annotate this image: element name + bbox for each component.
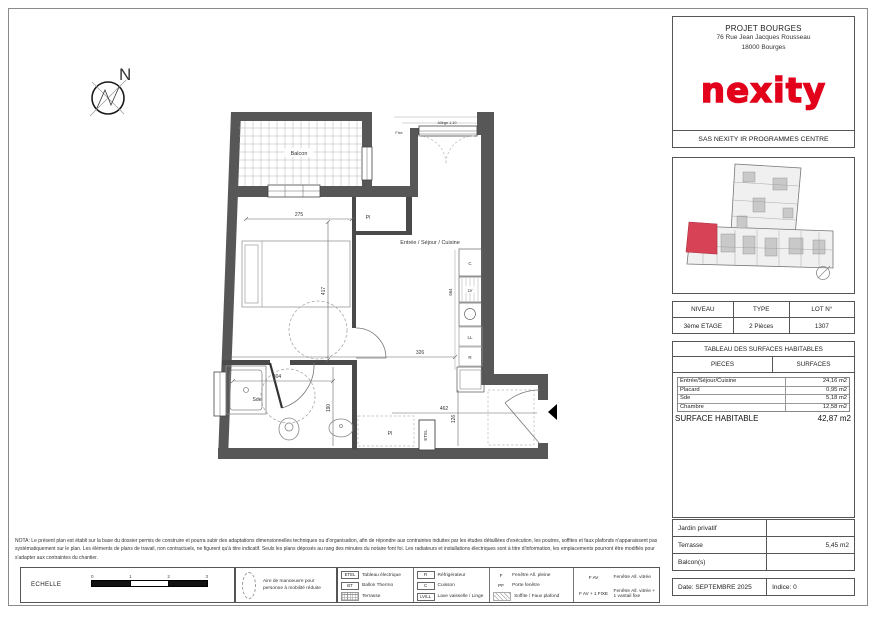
compass-icon: N bbox=[90, 65, 131, 116]
closet-label-pl-2: Pl bbox=[388, 431, 392, 437]
surface-row: Entrée/Séjour/Cuisine 24,16 m2 bbox=[678, 378, 849, 387]
legend-lave-vaisselle: LV/LL Lave vaisselle / Linge bbox=[417, 592, 488, 601]
highlighted-unit bbox=[686, 222, 717, 254]
surfaces-title: TABLEAU DES SURFACES HABITABLES bbox=[673, 342, 854, 357]
lot-table: NIVEAU TYPE LOT N° 3ème ETAGE 2 Pièces 1… bbox=[672, 301, 855, 334]
annex-table: Jardin privatif Terrasse 5,45 m2 Balcon(… bbox=[672, 519, 855, 571]
sde-door-leaf bbox=[270, 363, 282, 408]
room-label-balcon: Balcon bbox=[291, 151, 308, 157]
entrance-arrow-icon bbox=[548, 404, 557, 420]
surfaces-table: TABLEAU DES SURFACES HABITABLES PIECES S… bbox=[672, 341, 855, 518]
legend-fenetre-pleine: F Fenêtre All. pleine bbox=[493, 571, 570, 580]
pmr-circle-sde bbox=[261, 369, 315, 423]
closet-label-pl-1: Pl bbox=[366, 215, 370, 221]
dim-462: 462 bbox=[440, 406, 449, 412]
lot-header-lot: LOT N° bbox=[790, 302, 854, 318]
legend-fenetre-vitree: F AV Fenêtre All. vitrée bbox=[577, 573, 657, 582]
north-label: N bbox=[119, 65, 131, 84]
plan-sheet: N bbox=[0, 0, 876, 619]
pmr-circle-icon bbox=[242, 572, 256, 599]
indice-label: Indice: 0 bbox=[767, 579, 797, 595]
window-label-allege: Allège 1,10 bbox=[438, 121, 457, 125]
annex-row-balcon: Balcon(s) bbox=[673, 554, 854, 571]
scale-block: ECHELLE 0 1 2 3 bbox=[20, 567, 235, 603]
nexity-logo: nexity bbox=[701, 53, 826, 131]
kitchen bbox=[457, 249, 484, 392]
appliance-label-r: R bbox=[468, 355, 472, 360]
lot-header-niveau: NIVEAU bbox=[673, 302, 733, 318]
project-address-1: 76 Rue Jean Jacques Rousseau bbox=[717, 33, 811, 43]
legend-refrigerateur: R Réfrigérateur bbox=[417, 571, 488, 580]
floor-plan: N bbox=[0, 0, 660, 535]
pmr-legend: Aire de manoeuvre pour personne à mobili… bbox=[235, 567, 337, 603]
legend-terrasse: Terrasse bbox=[341, 592, 411, 601]
legend-fenetre-vitree-fixe: F AV + 1 FIXE Fenêtre All. vitrée + 1 va… bbox=[577, 589, 657, 599]
symbols-legend: ETEL Tableau électrique BT Ballon Thermo… bbox=[337, 567, 660, 603]
key-plan-drawing bbox=[673, 158, 854, 293]
dim-304: 304 bbox=[273, 374, 282, 380]
dim-275: 275 bbox=[295, 212, 304, 218]
legend-bt: BT Ballon Thermo bbox=[341, 581, 411, 590]
surface-total-value: 42,87 m2 bbox=[818, 414, 851, 423]
dim-326: 326 bbox=[416, 350, 425, 356]
room-label-sejour: Entrée / Séjour / Cuisine bbox=[400, 240, 460, 246]
soffite-hatch-icon bbox=[493, 592, 511, 601]
date-block: Date: SEPTEMBRE 2025 Indice: 0 bbox=[672, 578, 855, 596]
annex-row-terrasse: Terrasse 5,45 m2 bbox=[673, 537, 854, 554]
bathroom-fixtures bbox=[226, 366, 353, 440]
balcony: Balcon bbox=[239, 121, 362, 186]
date-label: Date: SEPTEMBRE 2025 bbox=[673, 579, 767, 595]
surface-row: Chambre 12,58 m2 bbox=[678, 404, 849, 412]
nota-text: NOTA: Le présent plan est établi sur la … bbox=[15, 537, 660, 562]
legend-soffite: Soffite / Faux plafond bbox=[493, 592, 570, 601]
legend-cuisson: C Cuisson bbox=[417, 581, 488, 590]
window-label-fixe: Fixe bbox=[395, 131, 402, 135]
interior-walls bbox=[222, 197, 412, 450]
pmr-circle-chambre bbox=[289, 301, 347, 359]
room-label-sde: Sde bbox=[253, 397, 262, 403]
dim-190: 190 bbox=[326, 404, 332, 413]
bed bbox=[242, 241, 350, 307]
project-address-2: 18000 Bourges bbox=[741, 43, 785, 53]
project-title: PROJET BOURGES bbox=[725, 24, 801, 33]
terrasse-hatch-icon bbox=[341, 592, 359, 601]
appliance-label-lv: LV bbox=[468, 288, 473, 293]
scale-bar: 0 1 2 3 bbox=[91, 574, 208, 587]
surface-total-label: SURFACE HABITABLE bbox=[675, 414, 758, 423]
etel-label: ETEL bbox=[423, 429, 428, 441]
annex-row-jardin: Jardin privatif bbox=[673, 520, 854, 537]
lot-value-niveau: 3ème ETAGE bbox=[673, 318, 733, 334]
dim-417: 417 bbox=[321, 287, 327, 296]
surfaces-col-surfaces: SURFACES bbox=[773, 357, 854, 372]
dim-664: 664 bbox=[448, 288, 453, 296]
key-plan bbox=[672, 157, 855, 294]
pmr-text: Aire de manoeuvre pour personne à mobili… bbox=[256, 578, 336, 592]
surface-row: Sde 5,18 m2 bbox=[678, 395, 849, 404]
surfaces-col-pieces: PIECES bbox=[673, 357, 773, 372]
lot-value-lot: 1307 bbox=[790, 318, 854, 334]
scale-label: ECHELLE bbox=[31, 581, 61, 588]
title-block: PROJET BOURGES 76 Rue Jean Jacques Rouss… bbox=[672, 16, 855, 148]
dim-126: 126 bbox=[451, 415, 457, 424]
appliance-label-c: C bbox=[468, 261, 472, 266]
doors bbox=[282, 328, 540, 444]
company-name: SAS NEXITY IR PROGRAMMES CENTRE bbox=[673, 130, 854, 147]
legend-etel: ETEL Tableau électrique bbox=[341, 571, 411, 580]
appliance-label-ll: LL bbox=[467, 335, 473, 340]
lot-header-type: TYPE bbox=[733, 302, 790, 318]
lot-value-type: 2 Pièces bbox=[733, 318, 790, 334]
legend-porte-fenetre: PF Porte fenêtre bbox=[493, 581, 570, 590]
surface-row: Placard 0,95 m2 bbox=[678, 387, 849, 396]
